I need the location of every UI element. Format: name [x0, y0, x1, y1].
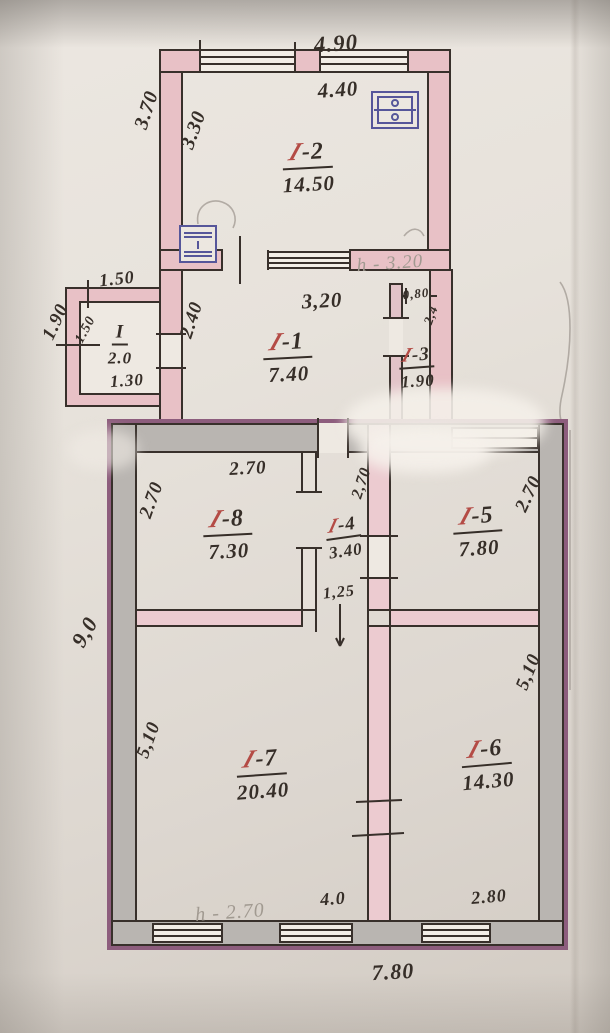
room-area: 7.30	[203, 535, 254, 566]
dim-lower-bottom-outer: 7.80	[371, 958, 415, 986]
dim-i1-top: 3,20	[301, 287, 343, 314]
window	[153, 924, 222, 942]
room-area: 3.40	[327, 536, 365, 564]
lower-building-walls	[109, 418, 566, 948]
room-number: I-8	[202, 505, 253, 538]
room-number: I-3	[398, 343, 435, 369]
dim-i6-bottom: 2.80	[470, 885, 507, 909]
room-area: 7.80	[453, 531, 504, 562]
annotation-upper-height: h - 3.20	[356, 251, 424, 278]
room-area: 2.0	[108, 346, 132, 369]
door-opening	[319, 423, 347, 453]
room-number: I-4	[323, 512, 361, 541]
stove-icon	[180, 226, 216, 262]
floor-plan-paper: 4.90 4.40 3.70 3.30 h - 3.20 1.50 1.90 1…	[0, 0, 610, 1033]
room-number: I	[112, 322, 128, 346]
room-label-i8: I-8 7.30	[202, 505, 254, 566]
room-label-i1: I-1 7.40	[262, 328, 314, 389]
glazed-partition	[268, 252, 350, 268]
dim-i7-bottom: 4.0	[320, 888, 347, 911]
outer-wall-outline	[109, 421, 566, 948]
stove-icon	[372, 92, 418, 128]
room-area: 1.90	[399, 367, 436, 392]
window	[280, 924, 352, 942]
dimension-arrow	[336, 604, 344, 646]
room-area: 14.50	[282, 168, 336, 199]
door-opening	[161, 334, 181, 368]
room-number: I-5	[451, 501, 502, 534]
room-label-i5: I-5 7.80	[451, 501, 504, 562]
window	[422, 924, 490, 942]
room-number: I-1	[262, 328, 313, 361]
room-label-i2: I-2 14.50	[280, 138, 335, 199]
dim-i8-top: 2.70	[229, 457, 267, 481]
window	[200, 50, 295, 72]
dimension-tick	[356, 800, 402, 802]
paper-crease	[570, 0, 580, 1033]
room-label-i4: I-4 3.40	[323, 512, 364, 563]
room-area: 14.30	[461, 764, 515, 796]
room-number: I-2	[282, 138, 333, 171]
room-area: 20.40	[236, 774, 290, 806]
dim-i3-door: 0,80	[402, 285, 430, 304]
dim-upper-top-inner: 4.40	[317, 76, 359, 104]
room-number: I-6	[460, 734, 512, 768]
whiteout-smudge	[360, 428, 490, 473]
dim-porch-top: 1.50	[98, 267, 136, 292]
room-label-porch: I 2.0	[108, 322, 132, 369]
annotation-lower-height: h - 2.70	[194, 899, 265, 927]
whiteout-smudge	[68, 430, 138, 470]
room-label-i3: I-3 1.90	[398, 343, 436, 392]
dim-porch-bottom: 1.30	[109, 370, 144, 392]
dim-i4-width: 1,25	[322, 582, 356, 603]
dim-upper-top-outer: 4.90	[313, 29, 359, 58]
door-opening	[369, 537, 389, 577]
room-area: 7.40	[263, 358, 314, 389]
room-label-i6: I-6 14.30	[458, 734, 515, 796]
room-number: I-7	[235, 744, 286, 777]
room-label-i7: I-7 20.40	[234, 744, 290, 806]
